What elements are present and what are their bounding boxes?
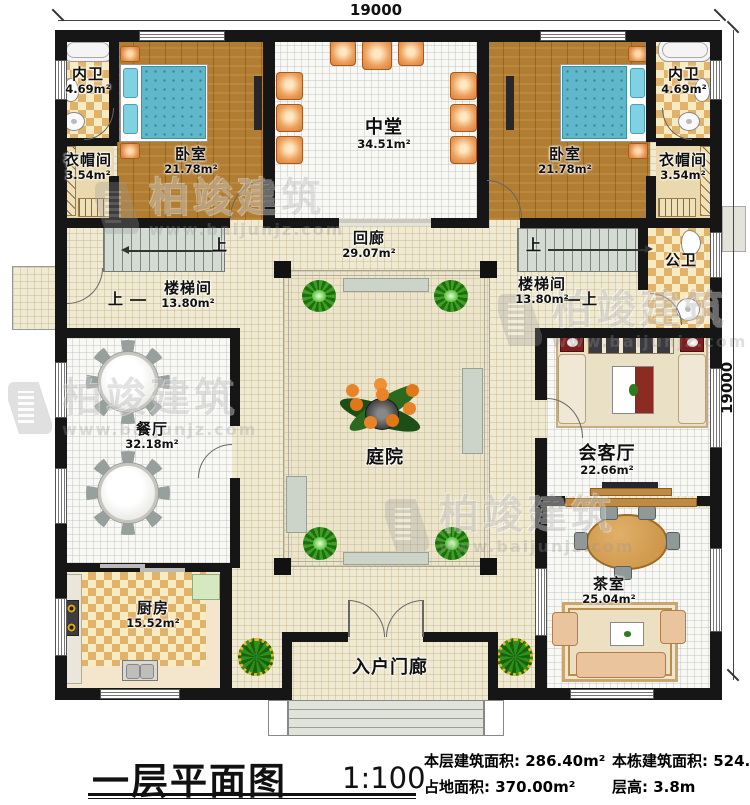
- room-label-ruhumenlang: 入户门廊: [320, 658, 460, 678]
- door-leaf: [422, 600, 424, 637]
- wall: [535, 338, 547, 400]
- room-name: 衣帽间: [56, 152, 120, 169]
- potted-plant: [238, 638, 274, 676]
- bench: [343, 552, 429, 565]
- room-name: 公卫: [650, 252, 712, 269]
- stat-value: 3.8m: [653, 778, 695, 796]
- room-label-neiwei-right: 内卫 4.69m²: [656, 66, 712, 95]
- stat-value: 370.00m²: [495, 778, 575, 796]
- wall: [697, 496, 710, 506]
- room-name: 庭院: [350, 448, 420, 468]
- nightstand: [120, 46, 140, 62]
- plant: [434, 280, 468, 312]
- wall: [265, 218, 339, 228]
- window: [139, 31, 225, 41]
- room-name: 内卫: [656, 66, 712, 83]
- room-label-gongwei: 公卫: [650, 252, 712, 269]
- wall: [423, 632, 488, 642]
- mattress: [141, 66, 206, 139]
- room-label-loutijian-right: 楼梯间 13.80m²: [496, 276, 588, 305]
- fruit: [376, 388, 389, 401]
- room-label-huilang: 回廊 29.07m²: [326, 230, 412, 259]
- hall-chair: [276, 136, 303, 164]
- pillow: [630, 68, 645, 98]
- sofa: [678, 354, 706, 424]
- wall: [230, 338, 240, 426]
- tea-tray-table: [610, 622, 644, 646]
- entry-steps: [288, 700, 484, 736]
- wall: [638, 228, 648, 290]
- room-area: 22.66m²: [558, 464, 656, 477]
- plant: [303, 527, 337, 560]
- stair-up-label: 上: [212, 234, 227, 255]
- planter-pot: [365, 398, 399, 430]
- title-underline: [88, 798, 416, 799]
- stat-label: 本栋建筑面积:: [612, 752, 708, 770]
- hall-chair: [330, 40, 356, 66]
- potted-plant: [497, 638, 533, 676]
- column: [480, 558, 497, 575]
- room-area: 21.78m²: [520, 163, 610, 176]
- courtyard-planter: [338, 376, 426, 452]
- room-label-woshi-right: 卧室 21.78m²: [520, 146, 610, 175]
- room-label-tingyuan: 庭院: [350, 448, 420, 468]
- dimension-line-right: [733, 30, 734, 680]
- step-side: [268, 700, 288, 736]
- wall: [292, 632, 348, 642]
- stair-arrow-line: [548, 249, 646, 251]
- stat-label: 层高:: [612, 778, 648, 796]
- plan-title: 一层平面图: [92, 751, 287, 805]
- tea-table: [586, 514, 668, 570]
- pillow: [630, 104, 645, 134]
- room-name: 餐厅: [116, 421, 188, 438]
- wall: [55, 218, 230, 228]
- stat-floor-height: 层高: 3.8m: [612, 776, 695, 797]
- room-area: 29.07m²: [326, 247, 412, 260]
- mattress: [562, 66, 627, 139]
- bench: [286, 476, 307, 533]
- wall: [535, 496, 565, 506]
- stat-value: 524.28m²: [713, 752, 750, 770]
- nightstand: [628, 46, 648, 62]
- wall: [535, 328, 722, 338]
- dimension-line-top: [58, 20, 720, 21]
- window: [540, 31, 626, 41]
- watermark-logo-icon: [8, 382, 52, 434]
- room-area: 32.18m²: [116, 438, 188, 451]
- plant: [435, 527, 469, 560]
- kitchen-sink: [122, 660, 158, 681]
- room-label-loutijian-left: 楼梯间 13.80m²: [142, 280, 234, 309]
- stat-label: 占地面积:: [424, 778, 490, 796]
- sofa: [576, 652, 666, 678]
- chair: [666, 532, 680, 550]
- hall-table: [362, 40, 392, 70]
- room-area: 3.54m²: [650, 169, 716, 182]
- chair: [574, 532, 588, 550]
- stat-ground-area: 占地面积: 370.00m²: [424, 776, 575, 797]
- nightstand: [628, 143, 648, 159]
- hall-table: [450, 104, 477, 132]
- wall: [431, 218, 487, 228]
- cabinet: [565, 498, 697, 507]
- room-label-chufang: 厨房 15.52m²: [116, 600, 190, 629]
- sliding-door-sill: [339, 223, 431, 226]
- room-name: 楼梯间: [496, 276, 588, 293]
- dimension-value-right: 19000: [718, 358, 736, 418]
- hall-chair: [398, 40, 424, 66]
- room-label-zhongtang: 中堂 34.51m²: [334, 118, 434, 150]
- pillow: [123, 104, 138, 134]
- hall-chair: [276, 72, 303, 100]
- wall: [55, 328, 240, 338]
- room-area: 15.52m²: [116, 617, 190, 630]
- bench: [462, 368, 483, 454]
- room-area: 13.80m²: [142, 297, 234, 310]
- room-name: 中堂: [334, 118, 434, 138]
- chair: [600, 506, 618, 520]
- window: [55, 468, 67, 524]
- window: [55, 598, 67, 656]
- room-name: 内卫: [60, 66, 116, 83]
- room-label-huiketing: 会客厅 22.66m²: [558, 444, 656, 476]
- kitchen-sliding-door: [100, 564, 145, 568]
- window: [570, 689, 654, 699]
- room-area: 34.51m²: [334, 138, 434, 151]
- tv: [254, 76, 262, 130]
- wall: [230, 478, 240, 568]
- window: [535, 568, 547, 636]
- room-name: 卧室: [146, 146, 236, 163]
- hall-table: [276, 104, 303, 132]
- room-label-yimaojian-right: 衣帽间 3.54m²: [650, 152, 716, 181]
- exterior-pad: [722, 206, 746, 252]
- dining-table: [86, 451, 170, 535]
- kitchen-sliding-door: [140, 568, 185, 572]
- room-area: 13.80m²: [496, 293, 588, 306]
- room-name: 卧室: [520, 146, 610, 163]
- room-label-neiwei-left: 内卫 4.69m²: [60, 66, 116, 95]
- chair: [638, 506, 656, 520]
- title-block: 一层平面图 1:100 本层建筑面积: 286.40m² 占地面积: 370.0…: [0, 745, 750, 805]
- tv: [506, 76, 514, 130]
- title-underline: [88, 793, 416, 796]
- wall: [282, 632, 292, 700]
- room-name: 会客厅: [558, 444, 656, 464]
- room-name: 楼梯间: [142, 280, 234, 297]
- room-label-canting: 餐厅 32.18m²: [116, 421, 188, 450]
- stat-label: 本层建筑面积:: [424, 752, 520, 770]
- window: [710, 548, 722, 632]
- wall: [220, 563, 232, 700]
- stat-value: 286.40m²: [525, 752, 605, 770]
- column: [480, 261, 497, 278]
- armchair: [552, 612, 578, 646]
- wall: [646, 42, 656, 142]
- nightstand: [120, 143, 140, 159]
- room-area: 4.69m²: [60, 83, 116, 96]
- armchair: [660, 610, 686, 644]
- stair-up-label: 上: [526, 234, 541, 255]
- side-landing: [12, 266, 58, 330]
- column: [274, 261, 291, 278]
- room-name: 入户门廊: [320, 658, 460, 678]
- plant: [302, 280, 336, 312]
- hall-chair: [450, 72, 477, 100]
- dimension-value-top: 19000: [348, 1, 404, 19]
- coffee-table: [612, 366, 654, 414]
- room-name: 回廊: [326, 230, 412, 247]
- room-area: 3.54m²: [56, 169, 120, 182]
- room-name: 茶室: [574, 576, 644, 593]
- stat-floor-area: 本层建筑面积: 286.40m²: [424, 750, 605, 771]
- dining-table: [86, 340, 170, 424]
- pillow: [123, 68, 138, 98]
- wall: [535, 636, 547, 700]
- stair-up-label: 上: [108, 288, 123, 309]
- room-label-yimaojian-left: 衣帽间 3.54m²: [56, 152, 120, 181]
- column: [274, 558, 291, 575]
- bench: [343, 278, 429, 292]
- room-name: 厨房: [116, 600, 190, 617]
- room-area: 21.78m²: [146, 163, 236, 176]
- wall: [520, 218, 722, 228]
- arrow-head: [121, 246, 129, 254]
- tv-cabinet: [590, 488, 672, 496]
- wall: [535, 506, 547, 568]
- stat-building-area: 本栋建筑面积: 524.28m²: [612, 750, 750, 771]
- door-leaf: [348, 600, 350, 637]
- floor-plan: 上 上 上 上: [0, 0, 750, 745]
- wall: [535, 438, 547, 498]
- shoe-cabinet: [658, 198, 696, 217]
- window: [55, 362, 67, 418]
- hall-chair: [450, 136, 477, 164]
- window: [100, 689, 180, 699]
- room-area: 4.69m²: [656, 83, 712, 96]
- room-label-woshi-left: 卧室 21.78m²: [146, 146, 236, 175]
- wall: [488, 632, 498, 700]
- room-label-chashi: 茶室 25.04m²: [574, 576, 644, 605]
- step-side: [484, 700, 504, 736]
- room-area: 25.04m²: [574, 593, 644, 606]
- tv: [602, 482, 658, 488]
- cutting-board: [192, 574, 220, 600]
- room-name: 衣帽间: [650, 152, 716, 169]
- plan-scale: 1:100: [342, 761, 426, 795]
- floor-plan-sheet: 上 上 上 上: [0, 0, 750, 805]
